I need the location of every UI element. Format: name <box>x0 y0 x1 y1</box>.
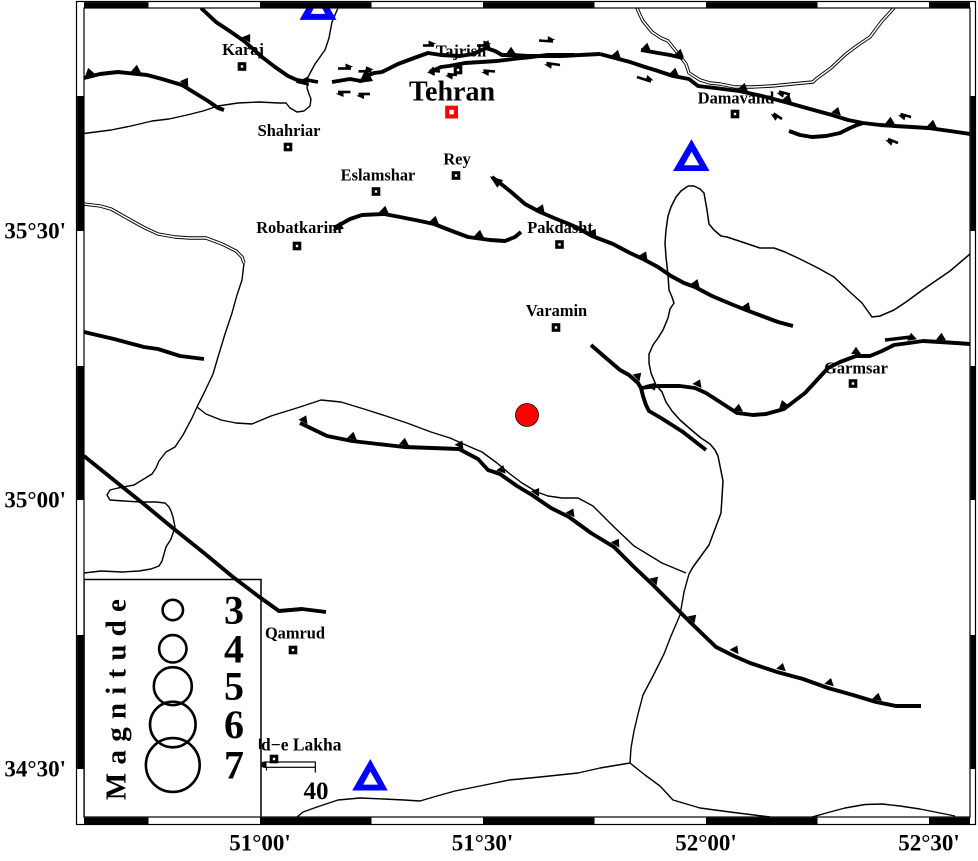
svg-text:Tajrish: Tajrish <box>436 42 486 61</box>
svg-text:51°30': 51°30' <box>452 831 514 856</box>
svg-text:Varamin: Varamin <box>526 301 587 320</box>
svg-text:Shahriar: Shahriar <box>258 121 321 140</box>
svg-text:52°00': 52°00' <box>675 831 737 856</box>
svg-text:Karaj: Karaj <box>222 40 264 59</box>
svg-text:52°30': 52°30' <box>898 831 960 856</box>
svg-text:40: 40 <box>304 778 329 805</box>
svg-text:35°00': 35°00' <box>4 488 66 513</box>
svg-text:Garmsar: Garmsar <box>824 359 888 378</box>
svg-text:6: 6 <box>224 702 244 747</box>
svg-text:51°00': 51°00' <box>229 831 291 856</box>
svg-text:34°30': 34°30' <box>4 757 66 782</box>
svg-text:Robatkarim: Robatkarim <box>256 218 342 237</box>
svg-text:Tehran: Tehran <box>409 77 496 108</box>
svg-text:Magnitude: Magnitude <box>101 591 133 800</box>
svg-text:d−e Lakha: d−e Lakha <box>261 735 342 755</box>
svg-text:Pakdasht: Pakdasht <box>527 218 593 237</box>
svg-text:Qamrud: Qamrud <box>265 624 325 643</box>
svg-text:7: 7 <box>224 743 244 788</box>
svg-text:35°30': 35°30' <box>4 219 66 244</box>
svg-text:Damavand: Damavand <box>698 89 775 108</box>
svg-text:Eslamshar: Eslamshar <box>341 166 416 185</box>
svg-text:Rey: Rey <box>443 150 471 169</box>
